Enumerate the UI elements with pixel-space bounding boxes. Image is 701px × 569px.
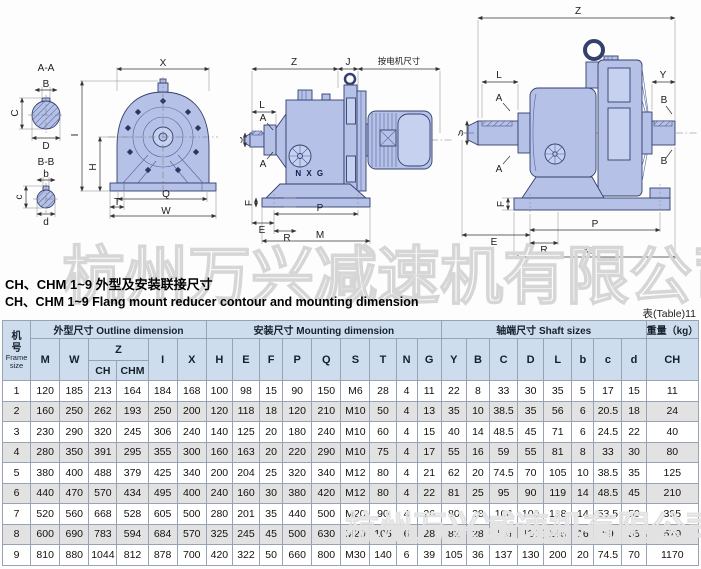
value-cell: 100	[206, 381, 232, 402]
value-cell: 1044	[89, 545, 117, 566]
col-Z-CHM: CHM	[117, 361, 148, 381]
flange-stack	[344, 74, 366, 197]
value-cell: 290	[60, 422, 89, 443]
col-C: C	[489, 339, 517, 381]
value-cell: 95	[489, 483, 517, 504]
section-mark-A-top: A	[496, 93, 503, 104]
value-cell: 880	[60, 545, 89, 566]
col-H: H	[206, 339, 232, 381]
value-cell: 22	[622, 422, 646, 443]
value-cell: 488	[89, 463, 117, 484]
value-cell: 50	[370, 401, 396, 422]
value-cell: 11	[417, 381, 441, 402]
value-cell: 400	[177, 483, 206, 504]
value-cell: 138	[544, 504, 572, 525]
col-weight-CH: CH	[646, 339, 698, 381]
frame-number-cell: 9	[3, 545, 31, 566]
value-cell: 240	[312, 422, 341, 443]
value-cell: 213	[89, 381, 117, 402]
value-cell: 184	[148, 381, 177, 402]
dim-label-Z: Z	[575, 6, 581, 17]
value-cell: 62	[441, 463, 466, 484]
value-cell: 60	[370, 422, 396, 443]
value-cell: 15	[260, 381, 283, 402]
value-cell: 28	[370, 381, 396, 402]
dim-label-d: d	[43, 217, 49, 228]
value-cell: 5	[572, 381, 594, 402]
value-cell: 137	[489, 545, 517, 566]
value-cell: 495	[148, 483, 177, 504]
dim-label-L: L	[259, 100, 265, 111]
frame-number-cell: 8	[3, 524, 31, 545]
value-cell: 55	[518, 442, 544, 463]
value-cell: 6	[572, 401, 594, 422]
value-cell: 245	[232, 524, 259, 545]
value-cell: 570	[646, 524, 698, 545]
dim-label-P: P	[317, 203, 324, 214]
value-cell: 306	[148, 422, 177, 443]
dim-label-X: X	[160, 58, 167, 69]
value-cell: 230	[31, 422, 60, 443]
value-cell: 630	[312, 524, 341, 545]
col-L: L	[544, 339, 572, 381]
value-cell: 118	[232, 401, 259, 422]
dim-label-c: c	[14, 195, 25, 200]
section-mark-A-top: A	[260, 113, 267, 124]
value-cell: 40	[441, 422, 466, 443]
value-cell: 395	[646, 504, 698, 525]
value-cell: 355	[148, 442, 177, 463]
value-cell: 125	[232, 422, 259, 443]
group-mounting-header: 安装尺寸 Mounting dimension	[206, 321, 441, 339]
col-D: D	[518, 339, 544, 381]
col-E: E	[232, 339, 259, 381]
value-cell: 668	[89, 504, 117, 525]
value-cell: 36	[466, 545, 489, 566]
dim-label-W: W	[161, 206, 171, 217]
col-B: B	[466, 339, 489, 381]
dim-label-I: I	[70, 134, 81, 137]
value-cell: 45	[622, 483, 646, 504]
dimension-table-wrap: 机号 Frame size 外型尺寸 Outline dimension 安装尺…	[2, 320, 699, 566]
table-row: 428035039129535530016016320220290M107541…	[3, 442, 699, 463]
table-row: 538040048837942534020020425320340M128042…	[3, 463, 699, 484]
dim-label-P: P	[592, 219, 599, 230]
value-cell: 25	[260, 463, 283, 484]
brand-label: N X G	[295, 169, 324, 178]
value-cell: 119	[544, 483, 572, 504]
value-cell: 70	[518, 463, 544, 484]
table-reference: 表(Table)11	[643, 306, 697, 321]
col-Q: Q	[312, 339, 341, 381]
value-cell: 500	[312, 504, 341, 525]
motor	[366, 111, 432, 169]
value-cell: 35	[518, 401, 544, 422]
dim-label-S: S	[240, 136, 246, 143]
table-row: 323029032024530624014012520180240M106041…	[3, 422, 699, 443]
value-cell: 10	[572, 463, 594, 484]
value-cell: 245	[117, 422, 148, 443]
value-cell: 21	[417, 463, 441, 484]
frame-number-cell: 3	[3, 422, 31, 443]
value-cell: 8	[572, 442, 594, 463]
value-cell: 290	[312, 442, 341, 463]
value-cell: 300	[177, 442, 206, 463]
value-cell: 15	[622, 381, 646, 402]
value-cell: 90	[283, 381, 312, 402]
value-cell: 4	[396, 422, 417, 443]
value-cell: 28	[466, 504, 489, 525]
value-cell: 13	[417, 401, 441, 422]
value-cell: 48.5	[489, 422, 517, 443]
value-cell: 40	[646, 422, 698, 443]
value-cell: 140	[206, 422, 232, 443]
value-cell: 39	[417, 545, 441, 566]
value-cell: 30	[260, 483, 283, 504]
value-cell: 220	[283, 442, 312, 463]
value-cell: 81	[441, 483, 466, 504]
value-cell: 8	[466, 381, 489, 402]
value-cell: 810	[31, 545, 60, 566]
dim-label-B: B	[43, 79, 50, 90]
value-cell: 130	[518, 545, 544, 566]
value-cell: 35	[441, 401, 466, 422]
side-view-plain-drawing: Z L Y A A B B S	[458, 2, 701, 268]
value-cell: 440	[283, 504, 312, 525]
frame-size-en: Frame size	[3, 354, 30, 370]
value-cell: 200	[206, 463, 232, 484]
value-cell: 180	[283, 422, 312, 443]
col-T: T	[370, 339, 396, 381]
col-I: I	[148, 339, 177, 381]
dim-label-D: D	[42, 141, 49, 152]
value-cell: 783	[89, 524, 117, 545]
input-shaft	[244, 125, 276, 155]
value-cell: 105	[544, 463, 572, 484]
gear-housing: N X G	[276, 90, 344, 184]
table-row: 1120185213164184168100981590150M62841122…	[3, 381, 699, 402]
value-cell: 106	[489, 504, 517, 525]
dim-label-R: R	[283, 233, 290, 244]
value-cell: 74.5	[594, 545, 622, 566]
value-cell: 6	[396, 524, 417, 545]
value-cell: 201	[232, 504, 259, 525]
frame-number-cell: 4	[3, 442, 31, 463]
value-cell: 80	[370, 463, 396, 484]
value-cell: 80	[646, 442, 698, 463]
value-cell: 53.5	[594, 504, 622, 525]
value-cell: 100	[518, 504, 544, 525]
value-cell: 160	[31, 401, 60, 422]
value-cell: 379	[117, 463, 148, 484]
value-cell: 75	[370, 442, 396, 463]
value-cell: 320	[89, 422, 117, 443]
value-cell: 425	[148, 463, 177, 484]
frame-size-zh: 机号	[11, 331, 22, 354]
value-cell: 594	[117, 524, 148, 545]
value-cell: 14	[572, 504, 594, 525]
value-cell: 4	[396, 463, 417, 484]
value-cell: M12	[341, 463, 370, 484]
value-cell: 22	[441, 381, 466, 402]
value-cell: 125	[646, 463, 698, 484]
value-cell: 15	[417, 422, 441, 443]
dim-label-E: E	[259, 225, 266, 236]
frame-number-cell: 1	[3, 381, 31, 402]
table-row: 644047057043449540024016030380420M128042…	[3, 483, 699, 504]
value-cell: 120	[283, 401, 312, 422]
value-cell: 59	[594, 524, 622, 545]
section-bb: B-B b c d	[14, 157, 59, 228]
value-cell: 250	[148, 401, 177, 422]
value-cell: 16	[572, 524, 594, 545]
value-cell: 20	[260, 442, 283, 463]
value-cell: 50	[260, 545, 283, 566]
dimension-table: 机号 Frame size 外型尺寸 Outline dimension 安装尺…	[2, 320, 699, 566]
dim-label-Q: Q	[162, 189, 170, 200]
table-row: 752056066852860550028020135440500M209042…	[3, 504, 699, 525]
value-cell: 45	[260, 524, 283, 545]
value-cell: 110	[518, 524, 544, 545]
dim-label-L: L	[496, 70, 502, 81]
value-cell: 605	[148, 504, 177, 525]
value-cell: 470	[60, 483, 89, 504]
value-cell: 500	[177, 504, 206, 525]
col-X: X	[177, 339, 206, 381]
dim-label-R: R	[540, 245, 547, 256]
value-cell: 6	[572, 422, 594, 443]
value-cell: 500	[283, 524, 312, 545]
reducer-front-view: X I H Q T W	[70, 58, 218, 219]
page-title-en: CH、CHM 1~9 Flang mount reducer contour a…	[5, 291, 419, 310]
value-cell: 70	[622, 545, 646, 566]
value-cell: 80	[370, 483, 396, 504]
dim-label-b: b	[43, 169, 49, 180]
col-P: P	[283, 339, 312, 381]
value-cell: 105	[370, 524, 396, 545]
frame-number-cell: 7	[3, 504, 31, 525]
value-cell: 59	[489, 442, 517, 463]
value-cell: 240	[206, 483, 232, 504]
col-Z-CH: CH	[89, 361, 117, 381]
value-cell: 4	[396, 504, 417, 525]
value-cell: 660	[283, 545, 312, 566]
value-cell: 26	[417, 504, 441, 525]
value-cell: 700	[177, 545, 206, 566]
value-cell: 35	[622, 463, 646, 484]
value-cell: M6	[341, 381, 370, 402]
value-cell: 30	[622, 442, 646, 463]
value-cell: 90	[518, 483, 544, 504]
value-cell: 80	[441, 504, 466, 525]
value-cell: 20	[466, 463, 489, 484]
value-cell: M10	[341, 442, 370, 463]
value-cell: 690	[60, 524, 89, 545]
value-cell: 200	[544, 545, 572, 566]
value-cell: 17	[594, 381, 622, 402]
col-F: F	[260, 339, 283, 381]
col-b: b	[572, 339, 594, 381]
value-cell: 38.5	[594, 463, 622, 484]
section-mark-A-bottom: A	[260, 159, 267, 170]
value-cell: 82	[441, 524, 466, 545]
value-cell: 55	[622, 524, 646, 545]
value-cell: 295	[117, 442, 148, 463]
table-row: 9810880104481287870042032250660800M30140…	[3, 545, 699, 566]
value-cell: 14	[572, 483, 594, 504]
col-Y: Y	[441, 339, 466, 381]
value-cell: 160	[206, 442, 232, 463]
value-cell: 55	[441, 442, 466, 463]
value-cell: 560	[60, 504, 89, 525]
value-cell: 600	[31, 524, 60, 545]
value-cell: 193	[117, 401, 148, 422]
value-cell: 38.5	[489, 401, 517, 422]
value-cell: M10	[341, 401, 370, 422]
value-cell: 684	[148, 524, 177, 545]
value-cell: 240	[177, 422, 206, 443]
col-N: N	[396, 339, 417, 381]
value-cell: M20	[341, 504, 370, 525]
value-cell: 16	[466, 442, 489, 463]
front-view-drawing: A-A B C D B-B b c	[8, 55, 240, 245]
value-cell: 120	[31, 381, 60, 402]
dim-label-T: T	[114, 197, 120, 208]
value-cell: 120	[206, 401, 232, 422]
frame-number-cell: 6	[3, 483, 31, 504]
value-cell: 45	[518, 422, 544, 443]
value-cell: 163	[232, 442, 259, 463]
col-W: W	[60, 339, 89, 381]
table-row: 860069078359468457032524545500630M201056…	[3, 524, 699, 545]
value-cell: M10	[341, 422, 370, 443]
value-cell: 24.5	[594, 422, 622, 443]
value-cell: 570	[177, 524, 206, 545]
value-cell: 185	[60, 381, 89, 402]
value-cell: 350	[60, 442, 89, 463]
value-cell: 391	[89, 442, 117, 463]
value-cell: 520	[31, 504, 60, 525]
dim-label-E: E	[491, 237, 498, 248]
value-cell: 812	[117, 545, 148, 566]
value-cell: 434	[117, 483, 148, 504]
table-row: 216025026219325020012011818120210M105041…	[3, 401, 699, 422]
col-G: G	[417, 339, 441, 381]
value-cell: 20	[260, 422, 283, 443]
value-cell: 30	[518, 381, 544, 402]
value-cell: 210	[312, 401, 341, 422]
value-cell: 74.5	[489, 463, 517, 484]
dim-label-F: F	[496, 201, 507, 207]
frame-size-header: 机号 Frame size	[3, 321, 31, 381]
group-shaft-header: 轴端尺寸 Shaft sizes	[441, 321, 646, 339]
value-cell: 25	[466, 483, 489, 504]
section-mark-A-bottom: A	[496, 164, 503, 175]
value-cell: 20	[572, 545, 594, 566]
value-cell: 528	[117, 504, 148, 525]
dim-label-Z: Z	[291, 57, 297, 68]
dim-label-C: C	[10, 109, 21, 116]
value-cell: 98	[232, 381, 259, 402]
value-cell: 4	[396, 442, 417, 463]
section-aa-label: A-A	[38, 63, 55, 74]
value-cell: M20	[341, 524, 370, 545]
dim-label-H: H	[88, 163, 99, 170]
dim-label-F: F	[244, 200, 255, 206]
dim-label-M: M	[316, 230, 324, 241]
value-cell: 81	[544, 442, 572, 463]
value-cell: 1170	[646, 545, 698, 566]
value-cell: 4	[396, 483, 417, 504]
dim-label-J: J	[346, 57, 351, 68]
value-cell: 160	[232, 483, 259, 504]
value-cell: 56	[544, 401, 572, 422]
frame-number-cell: 2	[3, 401, 31, 422]
value-cell: 570	[89, 483, 117, 504]
value-cell: 164	[117, 381, 148, 402]
value-cell: M12	[341, 483, 370, 504]
value-cell: 204	[232, 463, 259, 484]
value-cell: 340	[312, 463, 341, 484]
value-cell: 17	[417, 442, 441, 463]
value-cell: 420	[312, 483, 341, 504]
value-cell: 18	[622, 401, 646, 422]
value-cell: 800	[312, 545, 341, 566]
value-cell: 210	[646, 483, 698, 504]
col-Z: Z	[89, 339, 148, 361]
value-cell: 400	[60, 463, 89, 484]
value-cell: 165	[544, 524, 572, 545]
col-M: M	[31, 339, 60, 381]
value-cell: 28	[417, 524, 441, 545]
value-cell: 14	[466, 422, 489, 443]
value-cell: 24	[646, 401, 698, 422]
value-cell: 150	[312, 381, 341, 402]
section-bb-label: B-B	[38, 157, 55, 168]
frame-number-cell: 5	[3, 463, 31, 484]
col-S: S	[341, 339, 370, 381]
value-cell: 71	[544, 422, 572, 443]
value-cell: 4	[396, 381, 417, 402]
value-cell: 33	[594, 442, 622, 463]
value-cell: 380	[283, 483, 312, 504]
base-foot	[514, 177, 670, 214]
dim-label-Y: Y	[660, 70, 667, 81]
side-view-motor-drawing: Z J 按电机尺寸 S L A A	[240, 38, 462, 270]
value-cell: 280	[206, 504, 232, 525]
value-cell: 22	[417, 483, 441, 504]
col-d: d	[622, 339, 646, 381]
dim-label-M: M	[584, 246, 592, 257]
value-cell: 116	[489, 524, 517, 545]
value-cell: 440	[31, 483, 60, 504]
value-cell: 420	[206, 545, 232, 566]
section-mark-B-top: B	[661, 95, 668, 106]
value-cell: 280	[31, 442, 60, 463]
value-cell: 48.5	[594, 483, 622, 504]
value-cell: 380	[31, 463, 60, 484]
value-cell: 878	[148, 545, 177, 566]
value-cell: 11	[646, 381, 698, 402]
value-cell: 105	[441, 545, 466, 566]
value-cell: 262	[89, 401, 117, 422]
value-cell: 340	[177, 463, 206, 484]
group-outline-header: 外型尺寸 Outline dimension	[31, 321, 207, 339]
value-cell: 90	[370, 504, 396, 525]
input-shaft	[464, 113, 530, 153]
value-cell: 250	[60, 401, 89, 422]
section-aa: A-A B C D	[10, 63, 64, 152]
